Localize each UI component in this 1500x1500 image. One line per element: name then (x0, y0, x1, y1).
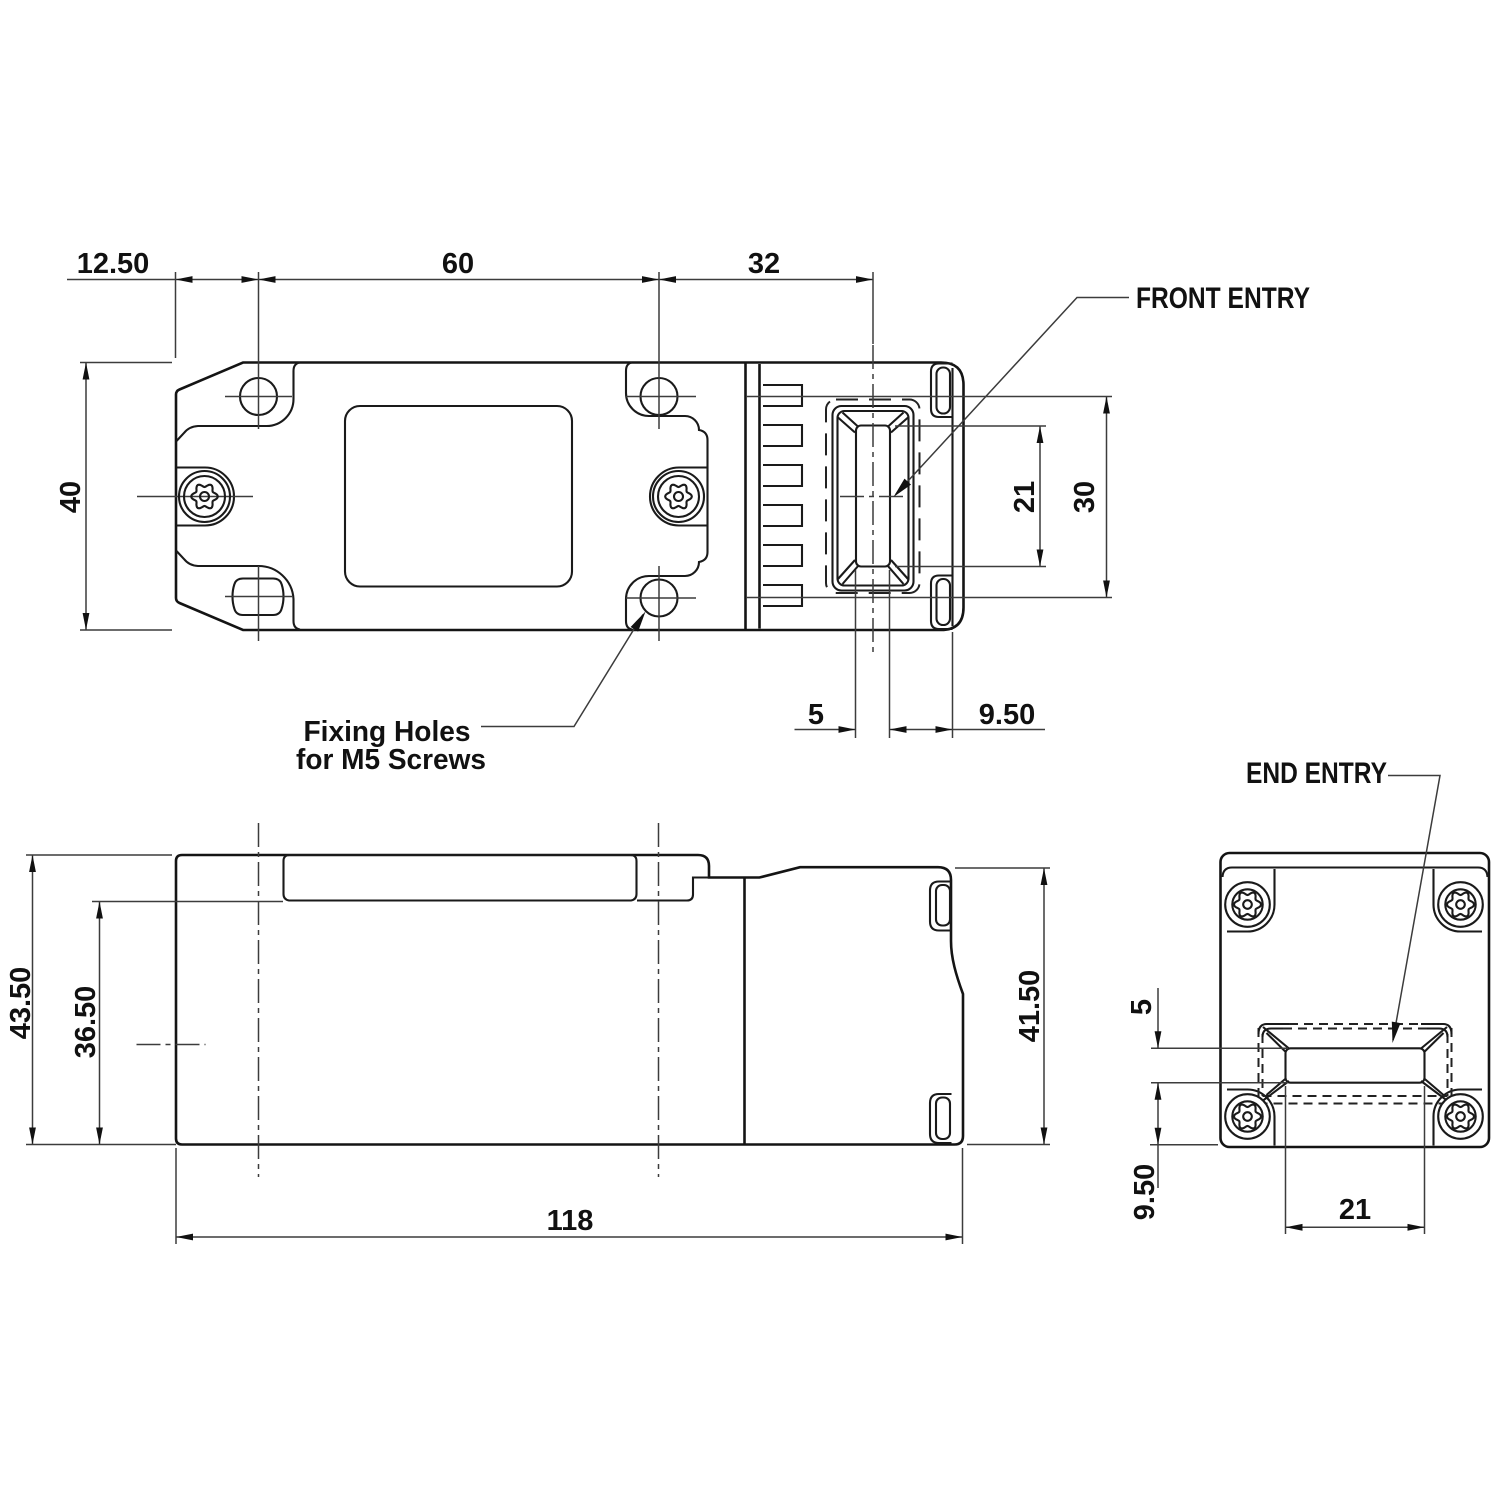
svg-text:60: 60 (442, 248, 474, 280)
svg-text:21: 21 (1009, 481, 1041, 513)
svg-text:5: 5 (808, 699, 824, 731)
svg-text:32: 32 (748, 248, 780, 280)
svg-text:5: 5 (1126, 999, 1158, 1015)
svg-text:118: 118 (547, 1205, 594, 1237)
svg-text:36.50: 36.50 (70, 986, 102, 1059)
svg-text:41.50: 41.50 (1014, 970, 1046, 1043)
svg-text:21: 21 (1339, 1194, 1371, 1226)
svg-text:30: 30 (1069, 481, 1101, 513)
svg-text:END ENTRY: END ENTRY (1246, 757, 1387, 790)
svg-text:40: 40 (55, 481, 87, 513)
svg-text:12.50: 12.50 (77, 248, 150, 280)
svg-text:43.50: 43.50 (5, 967, 37, 1040)
svg-text:FRONT ENTRY: FRONT ENTRY (1136, 282, 1310, 315)
svg-text:9.50: 9.50 (979, 699, 1035, 731)
svg-text:9.50: 9.50 (1129, 1164, 1161, 1220)
svg-text:for M5 Screws: for M5 Screws (296, 744, 486, 776)
